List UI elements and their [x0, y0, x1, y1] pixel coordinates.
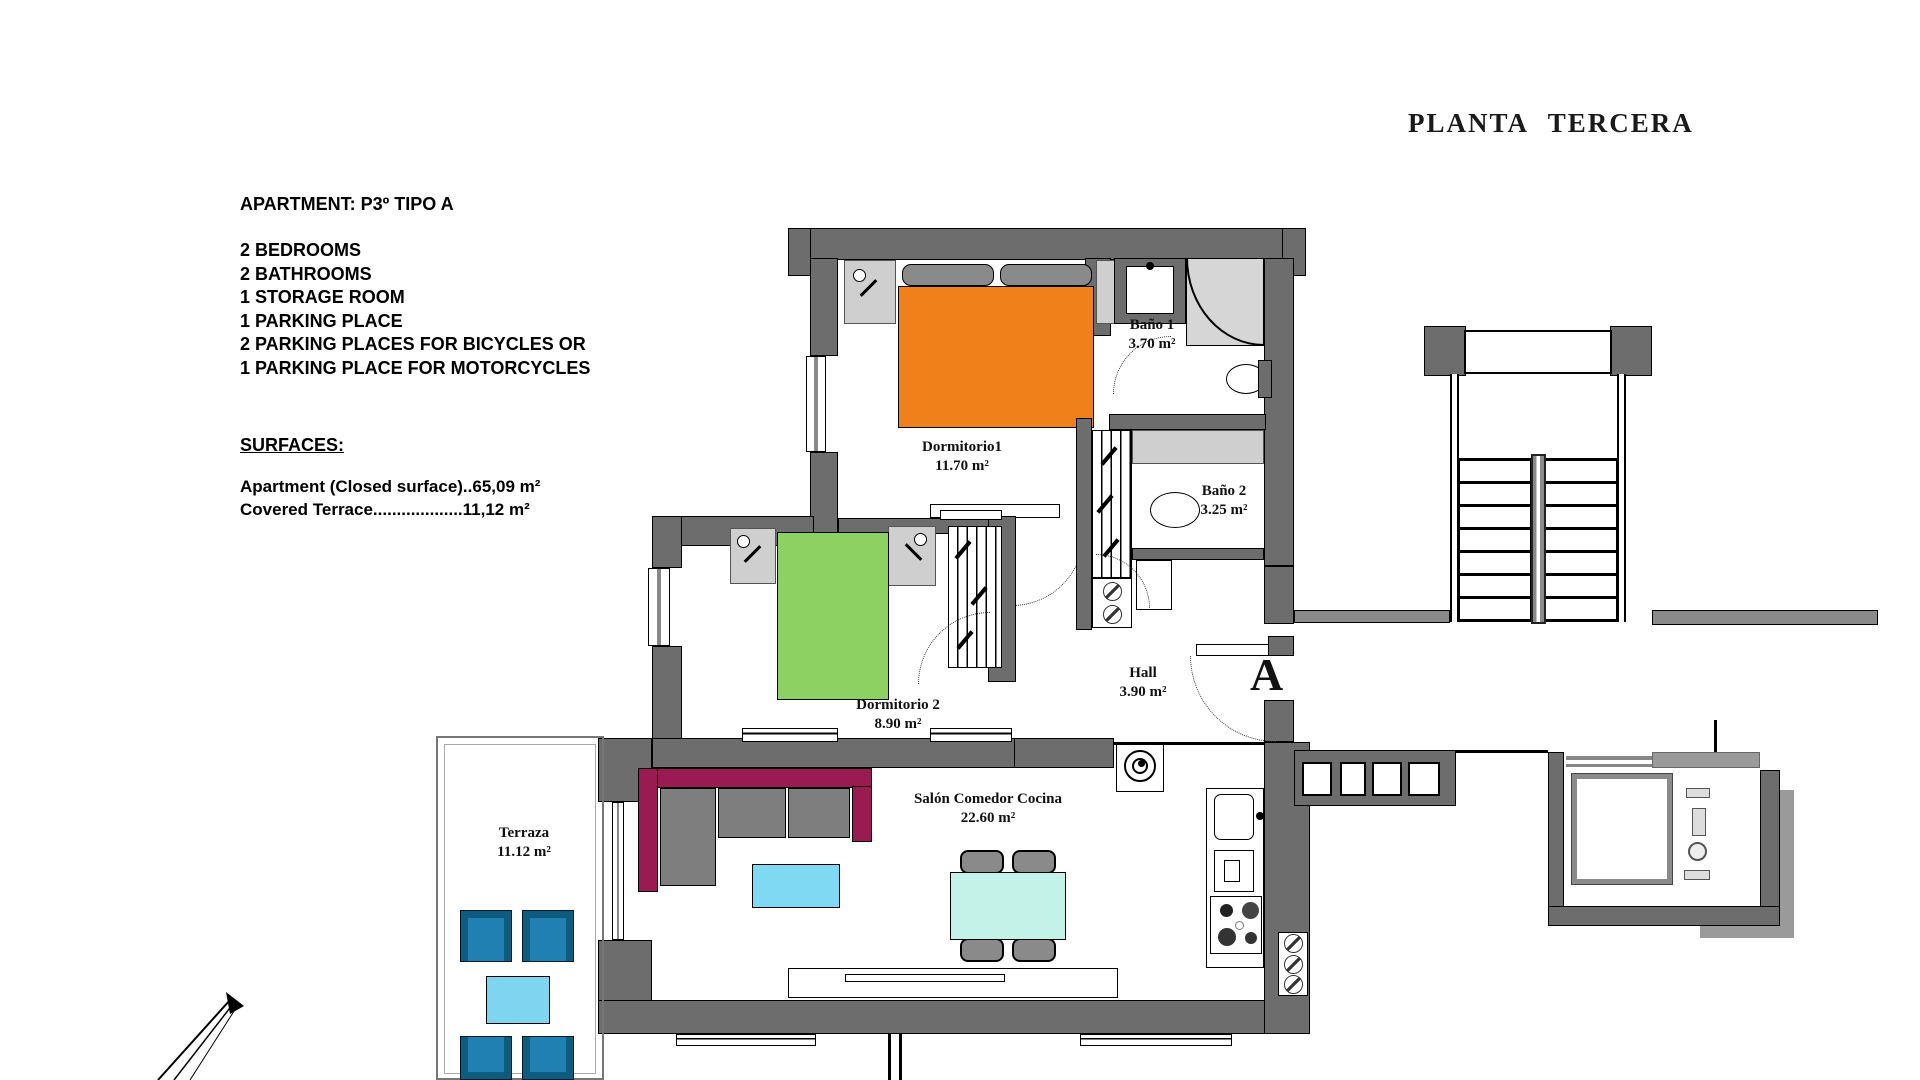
wall-segment	[810, 258, 838, 356]
lamp-icon	[853, 269, 866, 282]
elevator-machinery-icon	[1686, 788, 1710, 798]
wall-segment	[1109, 414, 1266, 430]
stair-wall	[1450, 374, 1459, 622]
shaft-shadow	[1780, 790, 1794, 938]
coil-icon	[1284, 955, 1303, 974]
door-swing-arc	[918, 612, 990, 684]
burner-icon	[1220, 904, 1233, 917]
sink-icon	[1126, 266, 1174, 314]
room-name: Baño 1	[1129, 316, 1176, 335]
room-area: 3.70 m²	[1129, 335, 1176, 354]
elevator-machinery-icon	[1684, 870, 1710, 880]
elevator-machinery-icon	[1692, 808, 1706, 836]
room-label-dormitorio1: Dormitorio1 11.70 m²	[922, 438, 1002, 476]
terrace-railing-inner	[444, 744, 596, 1074]
plan-title: PLANTA TERCERA	[1408, 108, 1694, 139]
window-sill	[742, 728, 838, 742]
tv-unit	[845, 974, 1005, 982]
surface-line: Apartment (Closed surface)..65,09 m²	[240, 477, 540, 497]
staircase-steps	[1459, 458, 1531, 622]
hanger-icon	[970, 586, 987, 605]
apartment-label: APARTMENT: P3º TIPO A	[240, 194, 454, 215]
shaft-shadow	[1700, 926, 1794, 938]
faucet-icon	[1146, 262, 1154, 270]
elevator-cab	[1572, 774, 1672, 884]
dining-chair	[960, 850, 1004, 874]
elevator-shaft-wall	[1548, 906, 1780, 926]
burner-icon	[1235, 921, 1244, 930]
sofa-back	[638, 768, 872, 788]
lamp-icon	[744, 545, 762, 563]
dining-chair	[960, 938, 1004, 962]
corridor-wall	[1652, 610, 1878, 625]
nightstand	[888, 526, 936, 586]
toilet-icon	[1150, 492, 1200, 528]
window	[648, 568, 670, 646]
room-label-dormitorio2: Dormitorio 2 8.90 m²	[856, 696, 940, 734]
pillow	[1000, 264, 1092, 286]
surface-line: Covered Terrace...................11,12 …	[240, 500, 530, 520]
sliding-door	[612, 802, 624, 940]
coffee-table	[752, 864, 840, 908]
wall-segment	[652, 738, 1018, 768]
burner-icon	[1218, 928, 1236, 946]
dining-chair	[1012, 850, 1056, 874]
sink-icon	[1214, 794, 1254, 840]
storage-heater-icon	[1278, 932, 1308, 996]
stair-wall	[1617, 374, 1626, 622]
wall-segment	[1014, 738, 1114, 768]
elevator-door-track	[1566, 756, 1652, 760]
elevator-machinery-icon	[1688, 842, 1707, 861]
pillow	[902, 264, 994, 286]
terrace-chair	[460, 1036, 512, 1080]
sideboard	[788, 968, 1118, 998]
wall-segment	[652, 516, 682, 568]
room-name: Terraza	[497, 824, 551, 843]
burner-icon	[1242, 902, 1259, 919]
lamp-icon	[914, 533, 927, 546]
window-sill	[930, 728, 1012, 742]
wall-segment	[652, 646, 682, 746]
door-swing-arc	[1012, 534, 1084, 606]
wall-segment	[1132, 548, 1264, 560]
room-area: 8.90 m²	[856, 715, 940, 734]
window-sill	[676, 1034, 816, 1046]
room-name: Dormitorio 2	[856, 696, 940, 715]
terrace-chair	[460, 910, 512, 962]
hanger-icon	[1096, 494, 1113, 513]
room-label-terraza: Terraza 11.12 m²	[497, 824, 551, 862]
room-area: 3.25 m²	[1201, 501, 1248, 520]
facade-line	[1456, 750, 1548, 753]
feature-line: 2 BATHROOMS	[240, 264, 372, 285]
north-arrow-icon	[148, 992, 258, 1080]
room-area: 3.90 m²	[1120, 683, 1167, 702]
room-name: Dormitorio1	[922, 438, 1002, 457]
window-sill	[1080, 1034, 1232, 1046]
window	[1340, 762, 1366, 796]
dining-chair	[1012, 938, 1056, 962]
feature-line: 2 PARKING PLACES FOR BICYCLES OR	[240, 334, 586, 355]
elevator-door-track	[1652, 752, 1760, 768]
feature-line: 2 BEDROOMS	[240, 240, 361, 261]
terrace-table	[486, 976, 550, 1024]
feature-line: 1 STORAGE ROOM	[240, 287, 405, 308]
bathroom-counter	[1132, 430, 1264, 464]
floor-plan-sheet: PLANTA TERCERA APARTMENT: P3º TIPO A 2 B…	[0, 0, 1920, 1080]
wall-segment	[1264, 258, 1294, 566]
window	[1302, 762, 1332, 796]
facade-line	[1714, 720, 1717, 752]
sofa-cushion	[788, 788, 850, 838]
room-label-hall: Hall 3.90 m²	[1120, 664, 1167, 702]
nightstand	[844, 260, 896, 324]
terrace-chair	[522, 910, 574, 962]
corridor-wall	[1294, 610, 1450, 623]
coil-icon	[1284, 934, 1303, 953]
elevator-door-track	[1566, 764, 1652, 767]
stair-post	[1610, 326, 1652, 376]
room-name: Salón Comedor Cocina	[914, 790, 1062, 809]
feature-line: 1 PARKING PLACE FOR MOTORCYCLES	[240, 358, 590, 379]
elevator-shaft-wall	[1760, 770, 1780, 920]
wall-segment	[1264, 566, 1294, 624]
washer-knob	[1138, 760, 1145, 767]
double-bed	[898, 286, 1094, 428]
window	[1372, 762, 1402, 796]
faucet-icon	[1256, 812, 1264, 820]
window	[1408, 762, 1440, 796]
lamp-icon	[737, 535, 750, 548]
room-area: 22.60 m²	[914, 809, 1062, 828]
hanger-icon	[1100, 446, 1117, 465]
room-label-bano2: Baño 2 3.25 m²	[1201, 482, 1248, 520]
facade-line	[899, 1034, 902, 1080]
coil-icon	[1284, 975, 1303, 994]
room-area: 11.70 m²	[922, 457, 1002, 476]
staircase-steps	[1545, 458, 1617, 622]
terrace-chair	[522, 1036, 574, 1080]
apartment-marker: A	[1250, 648, 1283, 701]
lamp-icon	[860, 279, 878, 297]
oven-door	[1224, 860, 1240, 882]
sofa-cushion	[718, 788, 786, 838]
room-label-bano1: Baño 1 3.70 m²	[1129, 316, 1176, 354]
facade-line	[888, 1034, 891, 1080]
room-name: Baño 2	[1201, 482, 1248, 501]
elevator-shaft-wall	[1548, 752, 1564, 924]
hanger-icon	[954, 540, 971, 559]
room-label-salon: Salón Comedor Cocina 22.60 m²	[914, 790, 1062, 828]
feature-line: 1 PARKING PLACE	[240, 311, 403, 332]
wall-segment	[598, 940, 652, 1004]
wall-segment	[788, 228, 812, 276]
room-name: Hall	[1120, 664, 1167, 683]
sofa-back	[638, 768, 658, 892]
double-bed	[777, 532, 889, 700]
wall-segment	[1076, 418, 1092, 630]
nightstand	[730, 528, 776, 584]
stair-landing	[1464, 330, 1612, 374]
sofa-arm	[852, 786, 872, 842]
surfaces-heading: SURFACES:	[240, 435, 344, 456]
wall-segment	[598, 1000, 1310, 1034]
window	[806, 356, 826, 452]
toilet-tank	[1258, 360, 1272, 398]
dining-table	[950, 872, 1066, 940]
stair-stringer	[1531, 454, 1546, 624]
wall-segment	[810, 228, 1294, 260]
shelf	[940, 510, 1002, 520]
room-area: 11.12 m²	[497, 843, 551, 862]
stair-post	[1424, 326, 1466, 376]
sofa-cushion	[660, 788, 716, 886]
burner-icon	[1245, 932, 1257, 944]
